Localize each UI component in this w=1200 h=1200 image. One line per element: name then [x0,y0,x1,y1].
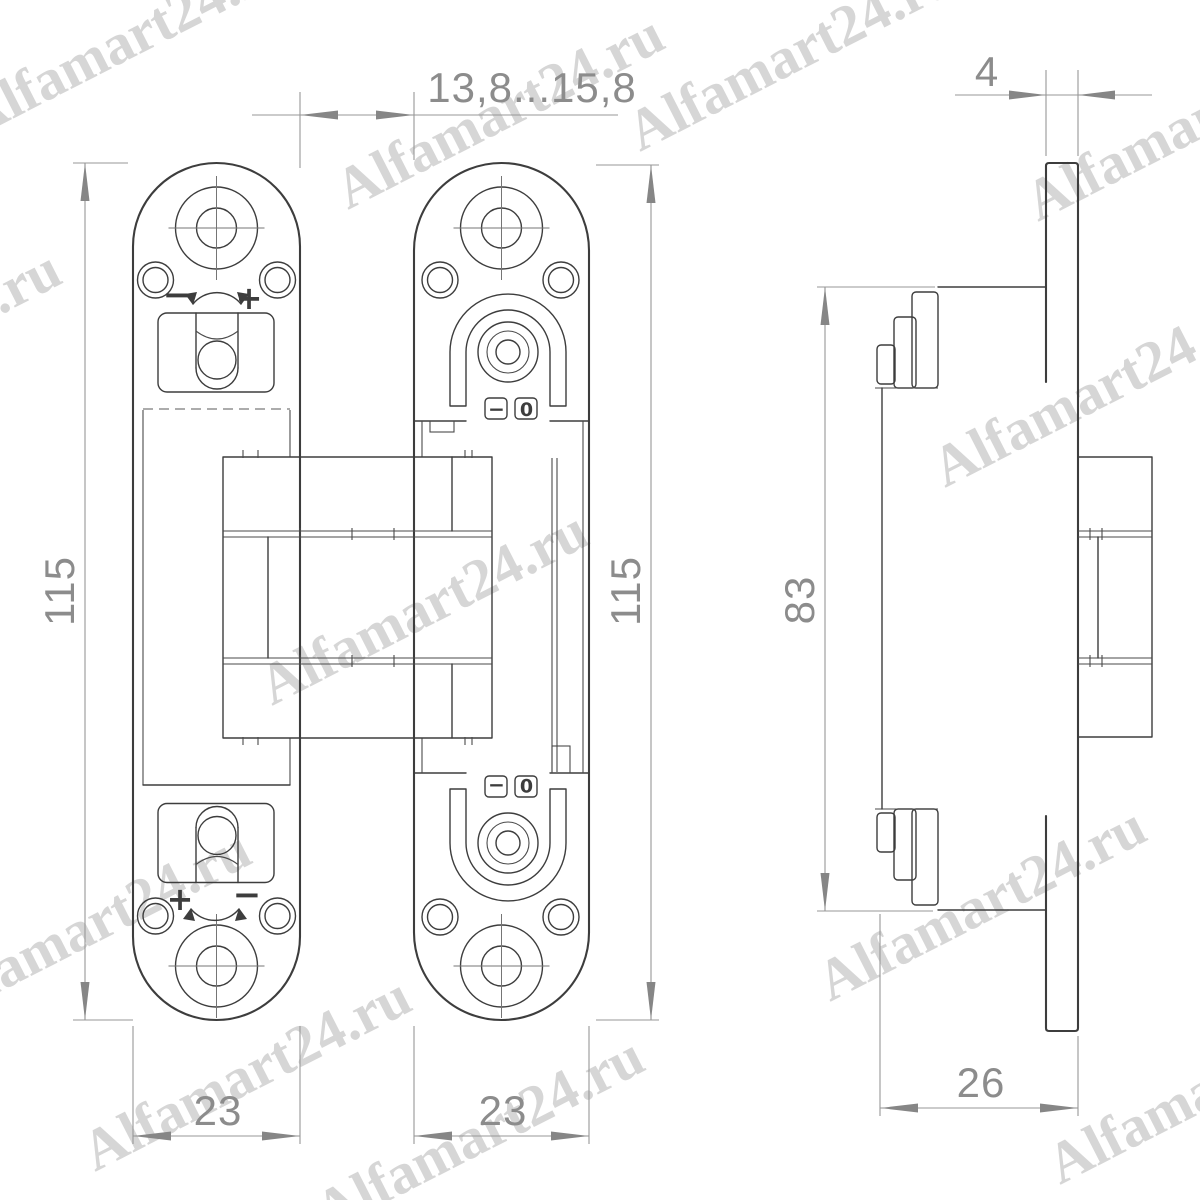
dim-label: 115 [602,556,649,626]
embedded-box [1078,457,1152,737]
watermark-text: Alfamart24.ru [0,0,301,150]
screw-bottom [169,914,265,1018]
watermark-text: Alfamart24.ru [806,793,1156,1014]
screw-bottom [454,914,550,1018]
plus-icon: + [167,880,194,918]
dim-label: 23 [479,1087,528,1134]
minus-indicator: − [488,397,505,421]
dim-middle-view-height: 115 [596,165,659,1020]
knurled-adjuster: − 0 [450,294,566,421]
watermark-text: Alfamart24.ru [1036,976,1200,1197]
watermark-text: Alfamart24.ru [616,0,966,164]
watermark-text: Alfamart24.ru [0,236,71,457]
technical-drawing-page: Alfamart24.ru Alfamart24.ru Alfamart24.r… [0,0,1200,1200]
pivot-lugs [875,287,1046,388]
dim-side-body-height: 83 [776,287,935,911]
pivot-pocket [158,313,274,392]
minus-icon: − [233,875,262,915]
watermark-text: Alfamart24.ru [0,816,261,1037]
watermark-text: Alfamart24.ru [71,963,421,1184]
screw-top [169,176,265,280]
watermark-text: Alfamart24.ru [1014,13,1200,234]
dim-label: 26 [957,1059,1006,1106]
screw-top [454,176,550,280]
watermark-text: Alfamart24.ru [921,279,1200,500]
plus-icon: + [236,279,263,317]
dim-label: 23 [194,1087,243,1134]
zero-indicator: 0 [520,399,533,421]
dim-label: 4 [975,48,999,95]
knurl-hatch [450,294,566,406]
dim-label: 115 [36,556,83,626]
minus-icon: − [163,275,192,315]
hinge-drawing: Alfamart24.ru Alfamart24.ru Alfamart24.r… [0,0,1200,1200]
adjust-arc-icon [193,293,241,304]
dim-label: 13,8...15,8 [427,64,637,111]
dim-label: 83 [776,576,823,625]
